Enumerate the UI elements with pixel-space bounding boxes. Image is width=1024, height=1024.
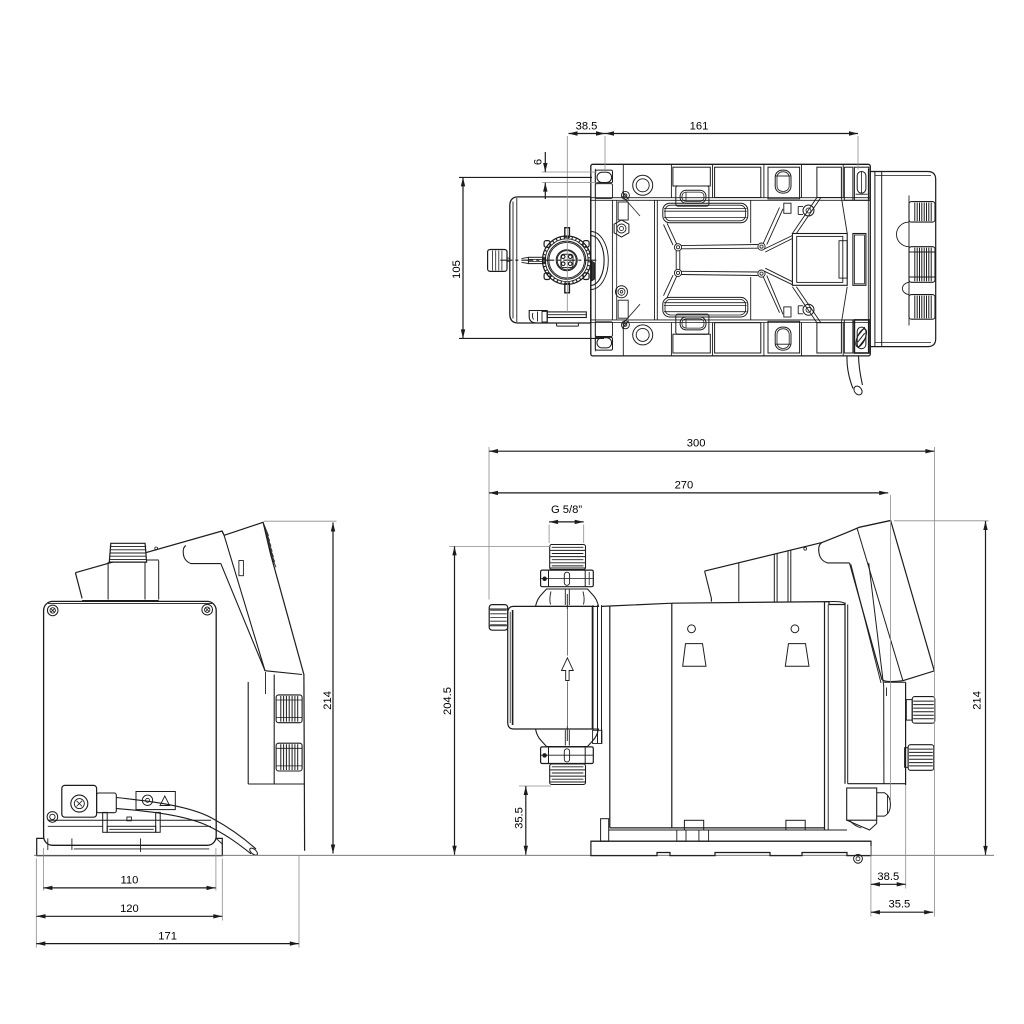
svg-text:161: 161	[690, 121, 709, 133]
svg-text:171: 171	[158, 930, 177, 942]
svg-text:38.5: 38.5	[576, 121, 598, 133]
svg-text:G 5/8”: G 5/8”	[551, 504, 582, 516]
svg-text:214: 214	[971, 691, 983, 710]
svg-text:300: 300	[687, 438, 706, 450]
svg-text:120: 120	[120, 903, 139, 915]
svg-text:270: 270	[675, 479, 694, 491]
svg-text:35.5: 35.5	[513, 807, 525, 829]
svg-text:6: 6	[532, 159, 544, 165]
svg-text:38.5: 38.5	[877, 871, 899, 883]
svg-text:204.5: 204.5	[442, 687, 454, 715]
svg-text:105: 105	[451, 260, 463, 279]
svg-text:35.5: 35.5	[889, 899, 911, 911]
svg-text:110: 110	[120, 875, 138, 887]
svg-text:214: 214	[322, 691, 334, 710]
